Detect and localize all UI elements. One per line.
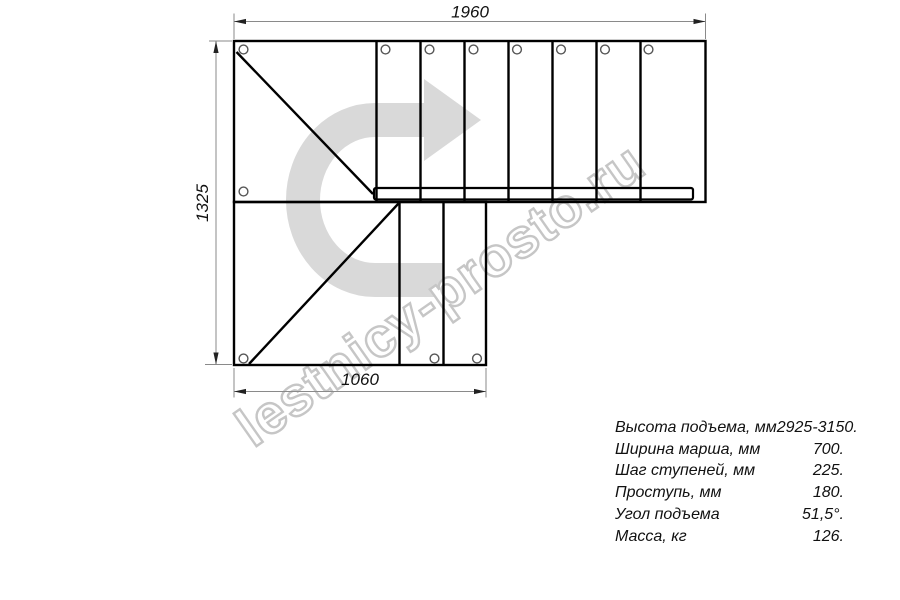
spec-row-mass: Масса, кг 126. — [615, 526, 844, 548]
hole-marker — [239, 45, 248, 54]
spec-label: Угол подъема — [615, 504, 720, 526]
hole-marker — [239, 187, 248, 196]
spec-label: Проступь, мм — [615, 482, 721, 504]
hole-marker — [557, 45, 566, 54]
hole-marker — [430, 354, 439, 363]
hole-marker — [425, 45, 434, 54]
spec-value: 126. — [813, 526, 844, 548]
spec-table: Высота подъема, мм 2925-3150. Ширина мар… — [615, 417, 844, 547]
hole-marker — [601, 45, 610, 54]
dimension-top: 1960 — [234, 3, 706, 40]
spec-row-step-pitch: Шаг ступеней, мм 225. — [615, 460, 844, 482]
hole-marker — [469, 45, 478, 54]
stair-plan-lines — [234, 41, 706, 365]
dimension-left-label: 1325 — [193, 184, 212, 222]
dim-arrow-icon — [213, 353, 218, 365]
spec-row-height: Высота подъема, мм 2925-3150. — [615, 417, 844, 439]
hole-marker — [239, 354, 248, 363]
dim-arrow-icon — [694, 19, 706, 24]
hole-marker — [473, 354, 482, 363]
stair-plan-page: lestnicy-prosto.ru — [0, 0, 900, 600]
spec-label: Ширина марша, мм — [615, 439, 760, 461]
spec-label: Высота подъема, мм — [615, 417, 777, 439]
hole-marker — [381, 45, 390, 54]
dim-arrow-icon — [213, 41, 218, 53]
spec-row-angle: Угол подъема 51,5°. — [615, 504, 844, 526]
spec-value: 180. — [813, 482, 844, 504]
dim-arrow-icon — [234, 19, 246, 24]
spec-row-tread: Проступь, мм 180. — [615, 482, 844, 504]
spec-label: Масса, кг — [615, 526, 687, 548]
dimension-top-label: 1960 — [451, 3, 489, 22]
dim-arrow-icon — [234, 389, 246, 394]
dimension-left: 1325 — [193, 41, 232, 365]
spec-label: Шаг ступеней, мм — [615, 460, 755, 482]
spec-value: 225. — [813, 460, 844, 482]
spec-value: 2925-3150. — [777, 417, 858, 439]
dim-arrow-icon — [474, 389, 486, 394]
spec-value: 51,5°. — [802, 504, 844, 526]
spec-row-march-width: Ширина марша, мм 700. — [615, 439, 844, 461]
turn-arrow-head — [424, 79, 481, 161]
spec-value: 700. — [813, 439, 844, 461]
hole-marker — [513, 45, 522, 54]
dimension-bottom-label: 1060 — [341, 370, 379, 389]
hole-marker — [644, 45, 653, 54]
